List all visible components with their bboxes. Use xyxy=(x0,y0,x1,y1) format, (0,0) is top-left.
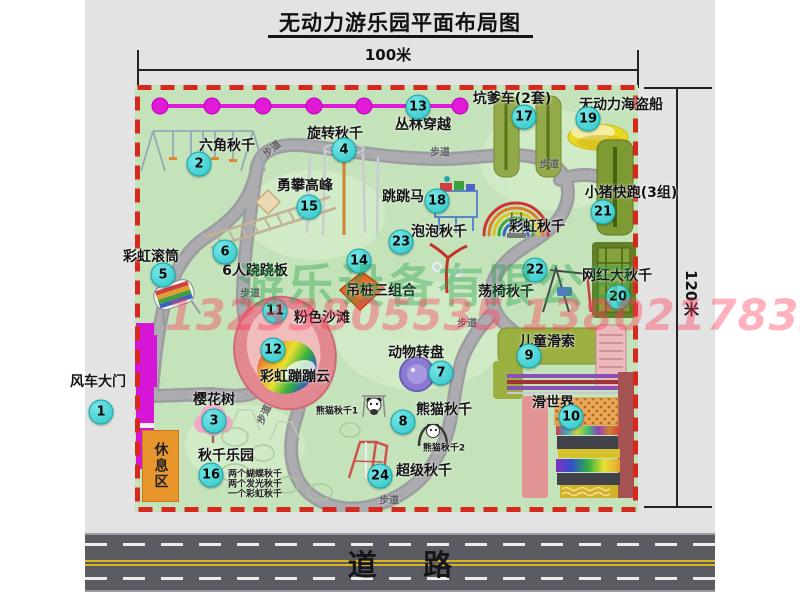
attraction-marker-10: 10 xyxy=(559,405,584,430)
attraction-label-14: 吊桩三组合 xyxy=(346,280,416,300)
attraction-marker-14: 14 xyxy=(347,249,372,274)
attraction-label-20: 网红大秋千 xyxy=(582,265,652,285)
dimension-label-width: 100米 xyxy=(338,44,438,65)
attraction-marker-13: 13 xyxy=(406,95,431,120)
attraction-label-18: 跳跳马 xyxy=(382,186,424,206)
attraction-label-8: 熊猫秋千 xyxy=(416,399,472,419)
attraction-label-2: 六角秋千 xyxy=(199,135,255,155)
road: 道路 xyxy=(85,533,715,592)
attraction-marker-22: 22 xyxy=(523,258,548,283)
label-panda-swing-1: 熊猫秋千1 xyxy=(316,404,358,417)
park-map: 休息区 风车大门1六角秋千2樱花树3旋转秋千4彩虹滚筒56人跷跷板6动物转盘7熊… xyxy=(135,85,638,512)
dimension-line-horizontal xyxy=(138,69,638,71)
attraction-marker-15: 15 xyxy=(297,195,322,220)
attraction-label-23: 泡泡秋千 xyxy=(411,221,467,241)
attraction-marker-21: 21 xyxy=(591,200,616,225)
attraction-label-1: 风车大门 xyxy=(70,371,126,391)
label-rainbow-swing: 彩虹秋千 xyxy=(509,216,565,236)
attraction-marker-7: 7 xyxy=(429,361,454,386)
attraction-marker-16: 16 xyxy=(199,463,224,488)
attraction-marker-3: 3 xyxy=(202,409,227,434)
attraction-label-11: 粉色沙滩 xyxy=(294,307,350,327)
attraction-marker-9: 9 xyxy=(517,344,542,369)
path-sign-3: 步道 xyxy=(539,156,559,171)
rest-area-label: 休息区 xyxy=(151,442,171,490)
label-panda-swing-2: 熊猫秋千2 xyxy=(423,441,465,454)
dimension-label-height: 120米 xyxy=(681,270,702,316)
title-underline xyxy=(268,35,533,38)
attraction-marker-19: 19 xyxy=(576,107,601,132)
attraction-marker-20: 20 xyxy=(606,285,631,310)
attraction-marker-11: 11 xyxy=(263,299,288,324)
swing-park-note-3: 一个彩虹秋千 xyxy=(228,487,282,500)
attraction-marker-23: 23 xyxy=(389,230,414,255)
attraction-label-12: 彩虹蹦蹦云 xyxy=(260,366,330,386)
attraction-label-22: 荡椅秋千 xyxy=(478,281,534,301)
dimension-line-vertical xyxy=(676,88,678,508)
road-label: 道路 xyxy=(85,535,715,590)
dimension-tick-bottom xyxy=(644,506,712,508)
path-sign-2: 步道 xyxy=(430,144,450,159)
path-sign-4: 步道 xyxy=(240,285,260,300)
attraction-marker-1: 1 xyxy=(89,400,114,425)
attraction-label-6: 6人跷跷板 xyxy=(222,260,288,280)
page-title: 无动力游乐园平面布局图 xyxy=(0,7,800,37)
attraction-label-17: 坑爹车(2套) xyxy=(473,88,552,108)
attraction-label-15: 勇攀高峰 xyxy=(277,175,333,195)
path-sign-7: 步道 xyxy=(379,492,399,507)
attraction-marker-8: 8 xyxy=(391,410,416,435)
dimension-tick-right xyxy=(637,50,639,88)
attraction-marker-12: 12 xyxy=(261,338,286,363)
park-plan-page: 无动力游乐园平面布局图 100米 120米 xyxy=(0,0,800,600)
attraction-marker-4: 4 xyxy=(332,138,357,163)
rest-area: 休息区 xyxy=(142,430,179,502)
attraction-marker-5: 5 xyxy=(151,263,176,288)
attraction-label-5: 彩虹滚筒 xyxy=(123,246,179,266)
attraction-marker-17: 17 xyxy=(512,105,537,130)
path-sign-5: 步道 xyxy=(457,315,477,330)
attraction-marker-18: 18 xyxy=(425,189,450,214)
attraction-label-7: 动物转盘 xyxy=(388,342,444,362)
attraction-label-16: 秋千乐园 xyxy=(198,445,254,465)
dimension-tick-left xyxy=(137,50,139,88)
attraction-marker-6: 6 xyxy=(213,240,238,265)
attraction-marker-2: 2 xyxy=(187,152,212,177)
attraction-label-3: 樱花树 xyxy=(193,389,235,409)
dimension-tick-top xyxy=(644,87,712,89)
attraction-label-24: 超级秋千 xyxy=(396,460,452,480)
attraction-marker-24: 24 xyxy=(368,464,393,489)
